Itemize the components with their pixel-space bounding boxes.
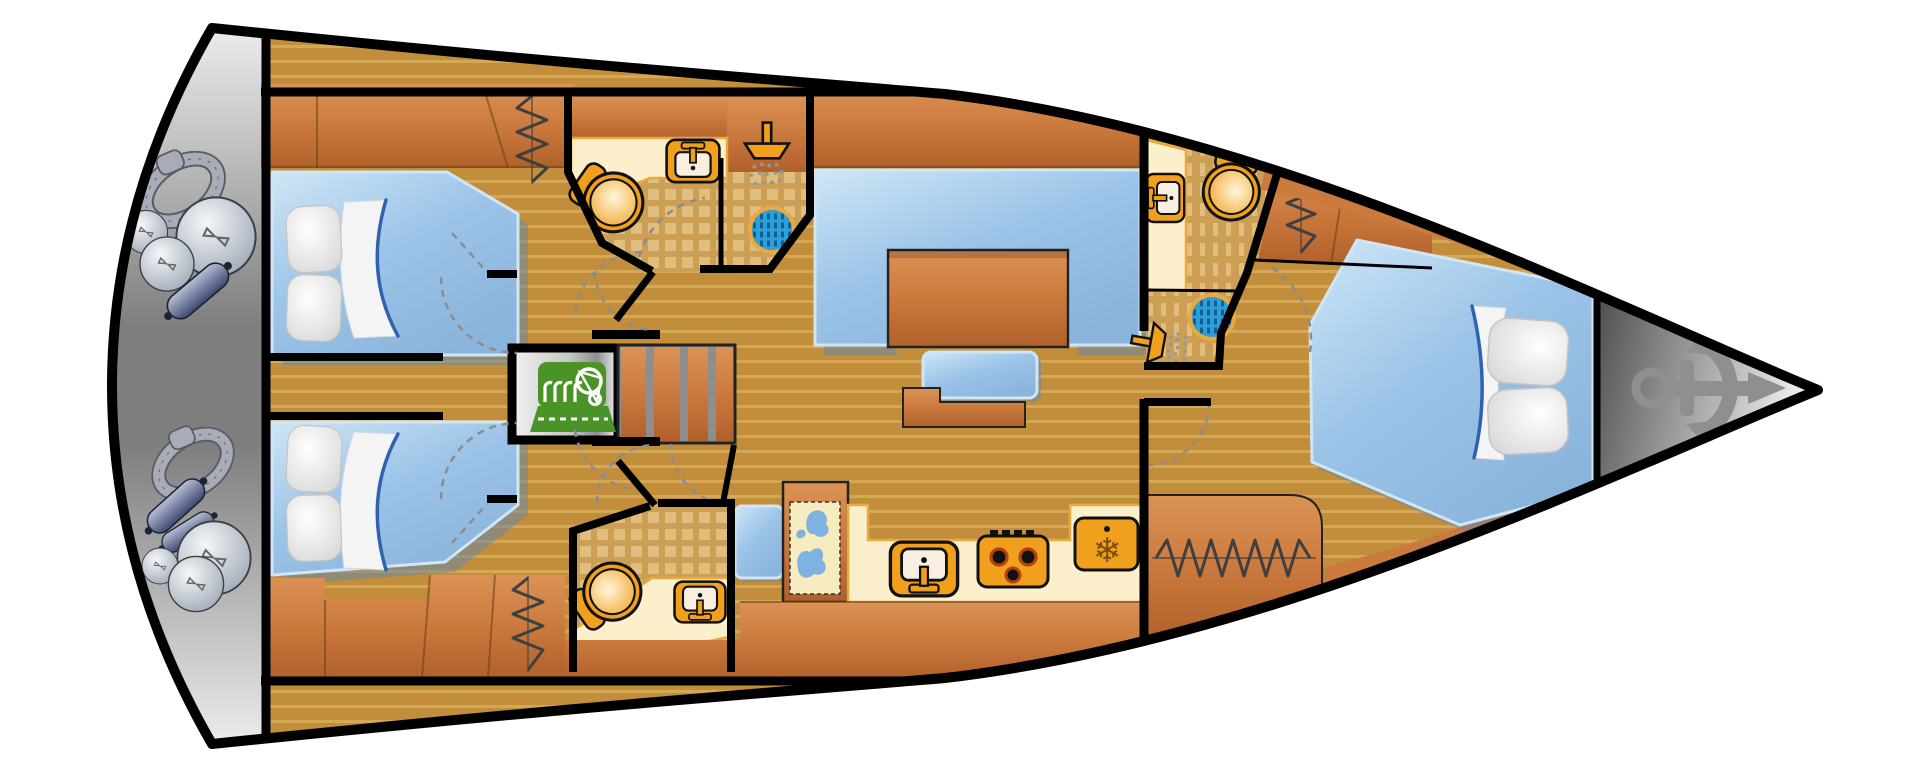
step <box>716 347 733 441</box>
pillow <box>286 274 342 342</box>
wall-stub <box>592 330 660 339</box>
fridge-icon: ❄ <box>1075 518 1138 571</box>
pillow <box>286 494 342 562</box>
yacht-floor-plan: ❄ <box>0 0 1920 772</box>
floor-plan-canvas: ❄ <box>0 0 1920 772</box>
engine-icon <box>530 362 616 432</box>
shower-partition <box>1147 290 1242 291</box>
sink-icon <box>890 542 957 596</box>
snowflake-icon: ❄ <box>1093 531 1122 571</box>
nav-seat <box>735 506 783 578</box>
stern-locker <box>100 20 266 752</box>
sink-icon <box>675 582 726 623</box>
step <box>621 347 646 441</box>
aft-port-cabinet <box>261 84 575 168</box>
stove-icon <box>978 530 1048 587</box>
fender-ball-icon <box>140 237 194 291</box>
salon-table <box>888 250 1068 347</box>
sink-icon <box>667 140 720 182</box>
step <box>654 347 680 441</box>
pillow <box>285 205 342 274</box>
engine-room <box>512 348 618 440</box>
stern-locker-area <box>100 20 266 752</box>
fender-ball-icon <box>168 556 223 611</box>
pillow <box>285 425 342 494</box>
step <box>688 347 708 441</box>
pillow <box>1486 317 1570 387</box>
pillow <box>1487 387 1569 456</box>
aft-cabin-port <box>272 172 528 365</box>
sink-icon <box>1146 174 1184 222</box>
wall-stub <box>592 437 660 446</box>
